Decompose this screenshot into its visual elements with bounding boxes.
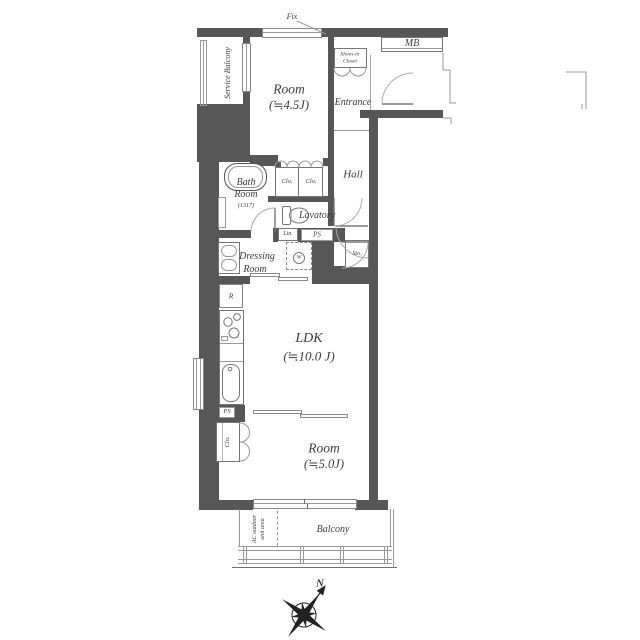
fix-pointer-line <box>297 21 326 34</box>
closet-a-label: Clo. <box>281 179 292 186</box>
room45-closet-doors <box>275 161 323 167</box>
ac-area-label-2: unit area <box>260 518 266 540</box>
bath-size-label: (1317) <box>238 203 254 209</box>
ac-area-label-1: AC outdoor <box>252 515 258 543</box>
bath-door-arc <box>251 208 275 232</box>
service-balcony-label: Service Balcony <box>224 47 232 99</box>
pipe-space-mid-label: PS <box>313 232 321 239</box>
exterior-corridor-lines <box>443 53 586 124</box>
floorplan-canvas: Fix MB Service Balcony Room (≒4.5J) Shoe… <box>0 0 640 640</box>
linen-label: Lin. <box>283 231 293 237</box>
compass-rose <box>266 569 347 640</box>
room-bottom-label: Room <box>308 441 340 455</box>
shoes-closet-doors <box>334 68 366 76</box>
refrigerator-label: R <box>229 292 234 300</box>
ldk-size-label: (≒10.0 J) <box>283 350 334 363</box>
balcony-label: Balcony <box>317 525 350 535</box>
storage-label: Sto. <box>352 251 361 257</box>
bath-label-1: Bath <box>237 178 256 188</box>
washer-label: W <box>297 255 302 261</box>
entrance-label: Entrance <box>335 98 372 108</box>
shoes-closet-label-1: Shoes-in <box>341 52 360 58</box>
dressing-label-2: Room <box>243 265 266 275</box>
hall-label: Hall <box>343 170 363 181</box>
north-label: N <box>316 579 324 590</box>
pipe-space-kitchen-label: PS <box>223 409 230 416</box>
room-top-size: (≒4.5J) <box>269 99 309 112</box>
fix-window-label: Fix <box>287 13 298 21</box>
compass-short-points <box>289 600 319 630</box>
ldk-label: LDK <box>295 332 322 346</box>
room5-closet-doors <box>240 423 250 461</box>
sink-faucet <box>228 367 232 371</box>
bath-label-2: Room <box>234 190 257 200</box>
closet-room5-label: Clo. <box>225 436 232 447</box>
stove-burners <box>224 314 241 338</box>
meter-box-label: MB <box>405 39 419 49</box>
lavatory-label: Lavatory <box>299 211 335 221</box>
lavatory-door-arc <box>334 198 362 226</box>
shoes-closet-label-2: Closet <box>343 59 357 65</box>
dressing-label-1: Dressing <box>239 252 275 262</box>
room-bottom-size: (≒5.0J) <box>304 458 344 471</box>
closet-b-label: Clo. <box>305 179 316 186</box>
entrance-door-arc <box>382 73 413 104</box>
plan-line-overlay <box>0 0 640 640</box>
room-top-label: Room <box>273 82 305 96</box>
